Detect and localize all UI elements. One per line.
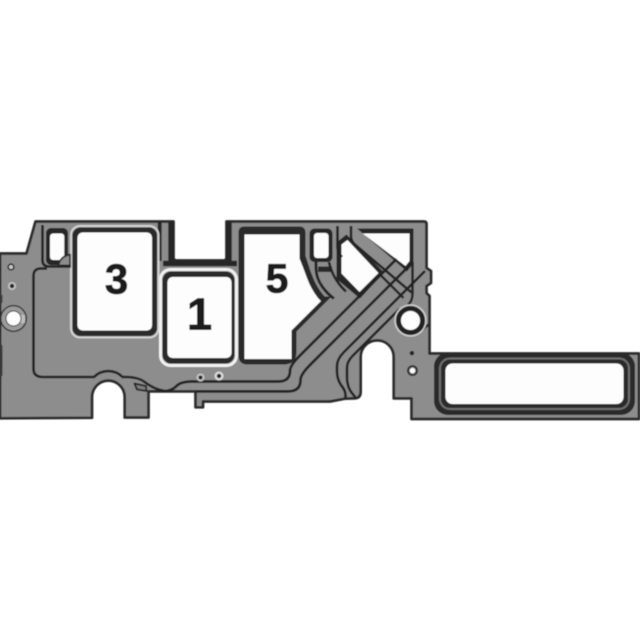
svg-text:1: 1 [187, 289, 212, 340]
svg-text:5: 5 [266, 256, 289, 302]
svg-text:3: 3 [105, 256, 128, 303]
